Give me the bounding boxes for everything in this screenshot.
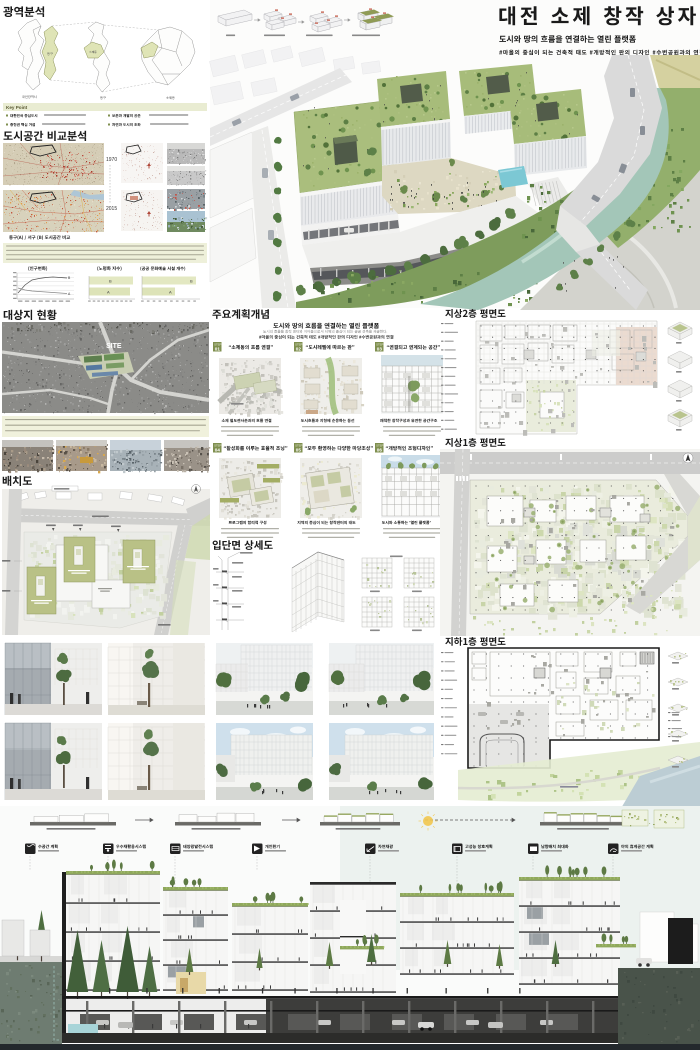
svg-text:B: B bbox=[109, 279, 112, 284]
svg-text:1970: 1970 bbox=[106, 157, 117, 163]
svg-text:Key Point: Key Point bbox=[6, 105, 28, 110]
svg-text:06: 06 bbox=[377, 447, 383, 452]
svg-text:04: 04 bbox=[215, 447, 221, 452]
svg-text:SITE: SITE bbox=[106, 343, 122, 350]
svg-text:02: 02 bbox=[296, 346, 302, 351]
svg-text:03: 03 bbox=[377, 346, 383, 351]
svg-text:B: B bbox=[190, 279, 193, 284]
svg-text:A: A bbox=[107, 290, 110, 295]
svg-text:A: A bbox=[169, 290, 172, 295]
svg-text:01: 01 bbox=[215, 346, 221, 351]
svg-text:05: 05 bbox=[296, 447, 302, 452]
svg-text:2015: 2015 bbox=[106, 206, 117, 212]
